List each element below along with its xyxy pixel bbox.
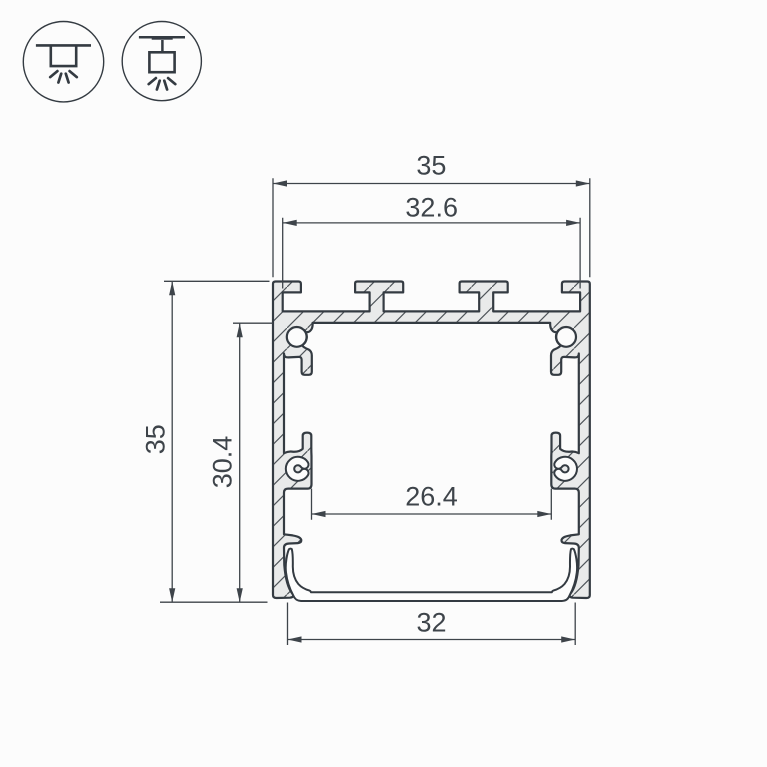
svg-text:32: 32: [416, 608, 446, 638]
svg-text:26.4: 26.4: [405, 482, 458, 512]
svg-text:35: 35: [141, 424, 171, 454]
svg-text:35: 35: [416, 151, 446, 181]
svg-text:32.6: 32.6: [405, 193, 458, 223]
svg-text:30.4: 30.4: [208, 436, 238, 489]
